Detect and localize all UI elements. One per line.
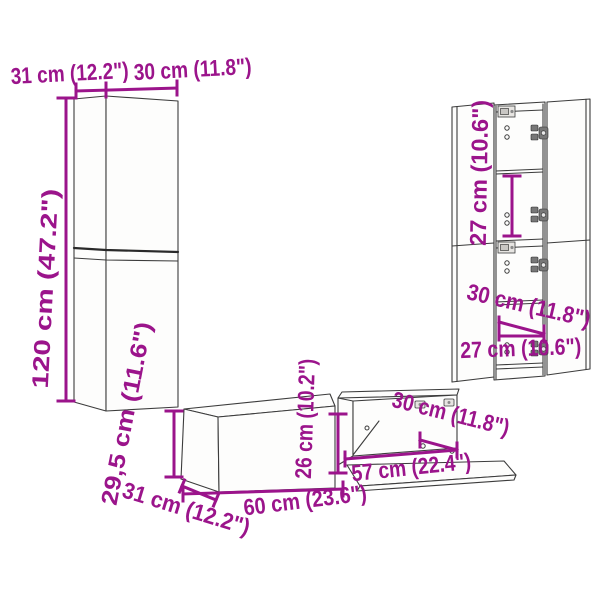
tv-bench-side-face: [181, 409, 219, 492]
dim-label-wall-cabinet-compartment-height: 27 cm (10.6"): [465, 100, 494, 246]
dim-tv-bench-height-line: [166, 411, 182, 477]
dim-label-tv-bench-open-height: 26 cm (10.2"): [290, 358, 320, 479]
dim-tall-cabinet-height-line: [58, 98, 74, 401]
tall-cabinet-side-panel: [74, 96, 106, 411]
diagram-canvas: 31 cm (12.2") 30 cm (11.8") 120 cm (47.2…: [0, 0, 600, 600]
dim-label-wall-cabinet-width: 27 cm (10.6"): [460, 333, 582, 363]
dim-label-tall-cabinet-height: 120 cm (47.2"): [27, 188, 63, 389]
furniture-dimension-diagram: 31 cm (12.2") 30 cm (11.8") 120 cm (47.2…: [0, 0, 600, 600]
wall-bracket-icon: [498, 242, 515, 253]
dim-label-tall-cabinet-width: 30 cm (11.8"): [133, 53, 252, 85]
dim-label-tall-cabinet-depth: 31 cm (12.2"): [10, 57, 129, 89]
wall-bracket-icon: [498, 106, 515, 117]
